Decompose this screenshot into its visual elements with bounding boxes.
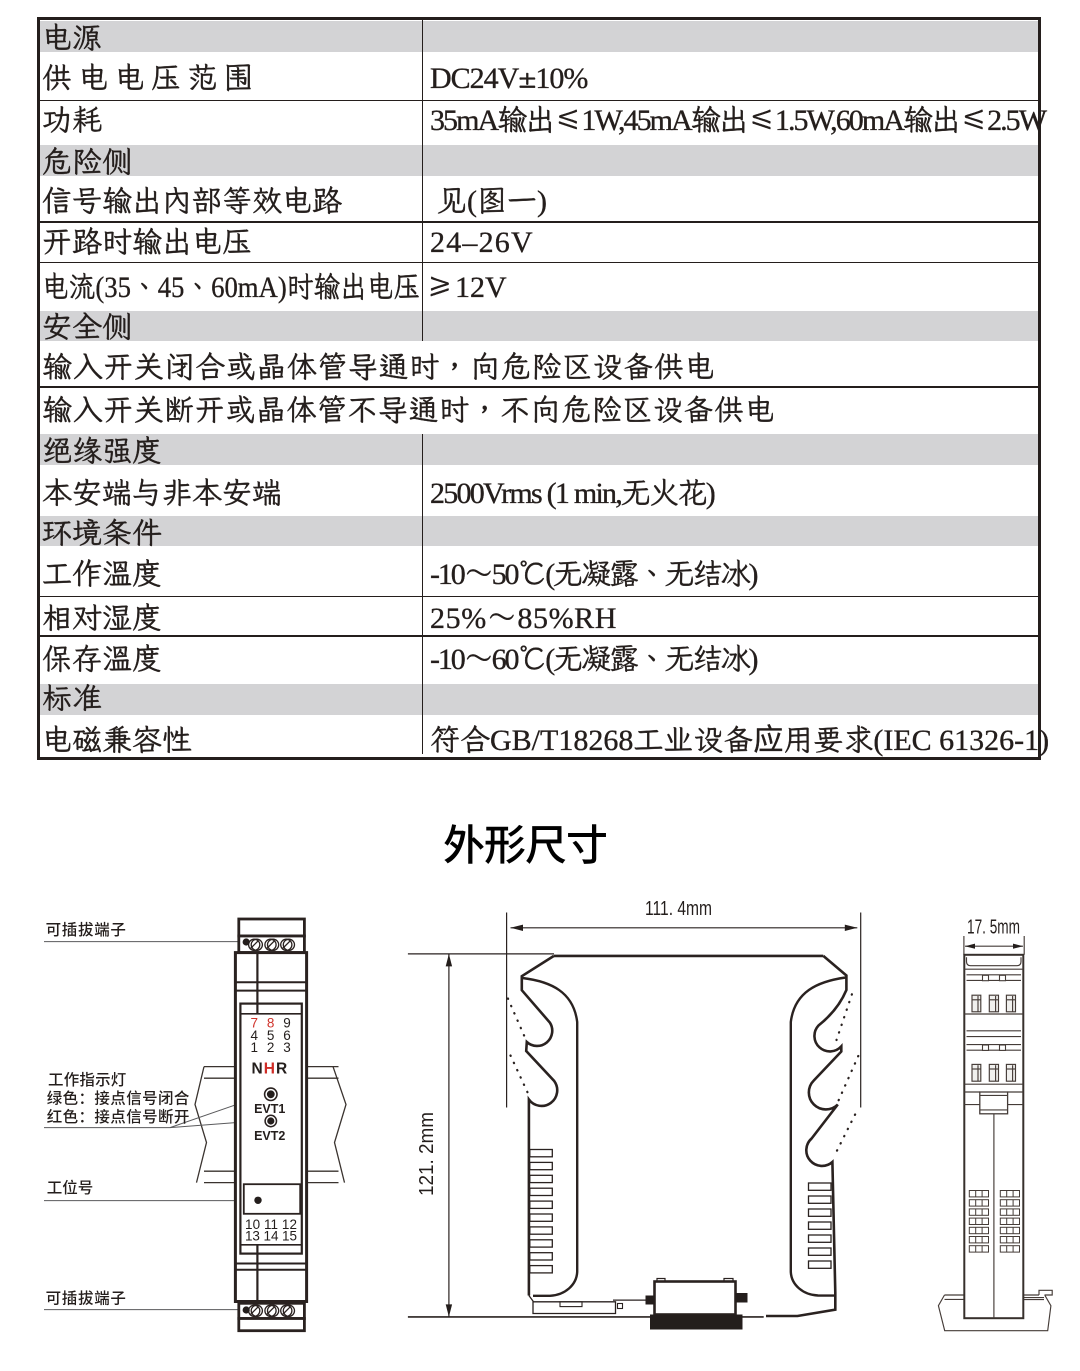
svg-text:17. 5mm: 17. 5mm [967, 917, 1020, 939]
svg-text:可插拔端子: 可插拔端子 [46, 918, 127, 940]
svg-text:EVT2: EVT2 [254, 1129, 285, 1143]
svg-text:可插拔端子: 可插拔端子 [46, 1287, 127, 1309]
svg-text:13 14 15: 13 14 15 [245, 1229, 297, 1244]
svg-text:工位号: 工位号 [47, 1176, 94, 1198]
svg-text:红色：接点信号断开: 红色：接点信号断开 [47, 1105, 190, 1127]
svg-text:R: R [276, 1061, 287, 1078]
svg-text:EVT1: EVT1 [254, 1102, 285, 1116]
svg-text:N: N [252, 1061, 263, 1078]
svg-text:123: 123 [250, 1040, 290, 1055]
svg-text:111. 4mm: 111. 4mm [645, 898, 712, 920]
svg-text:H: H [264, 1061, 275, 1078]
svg-text:121. 2mm: 121. 2mm [416, 1112, 438, 1196]
